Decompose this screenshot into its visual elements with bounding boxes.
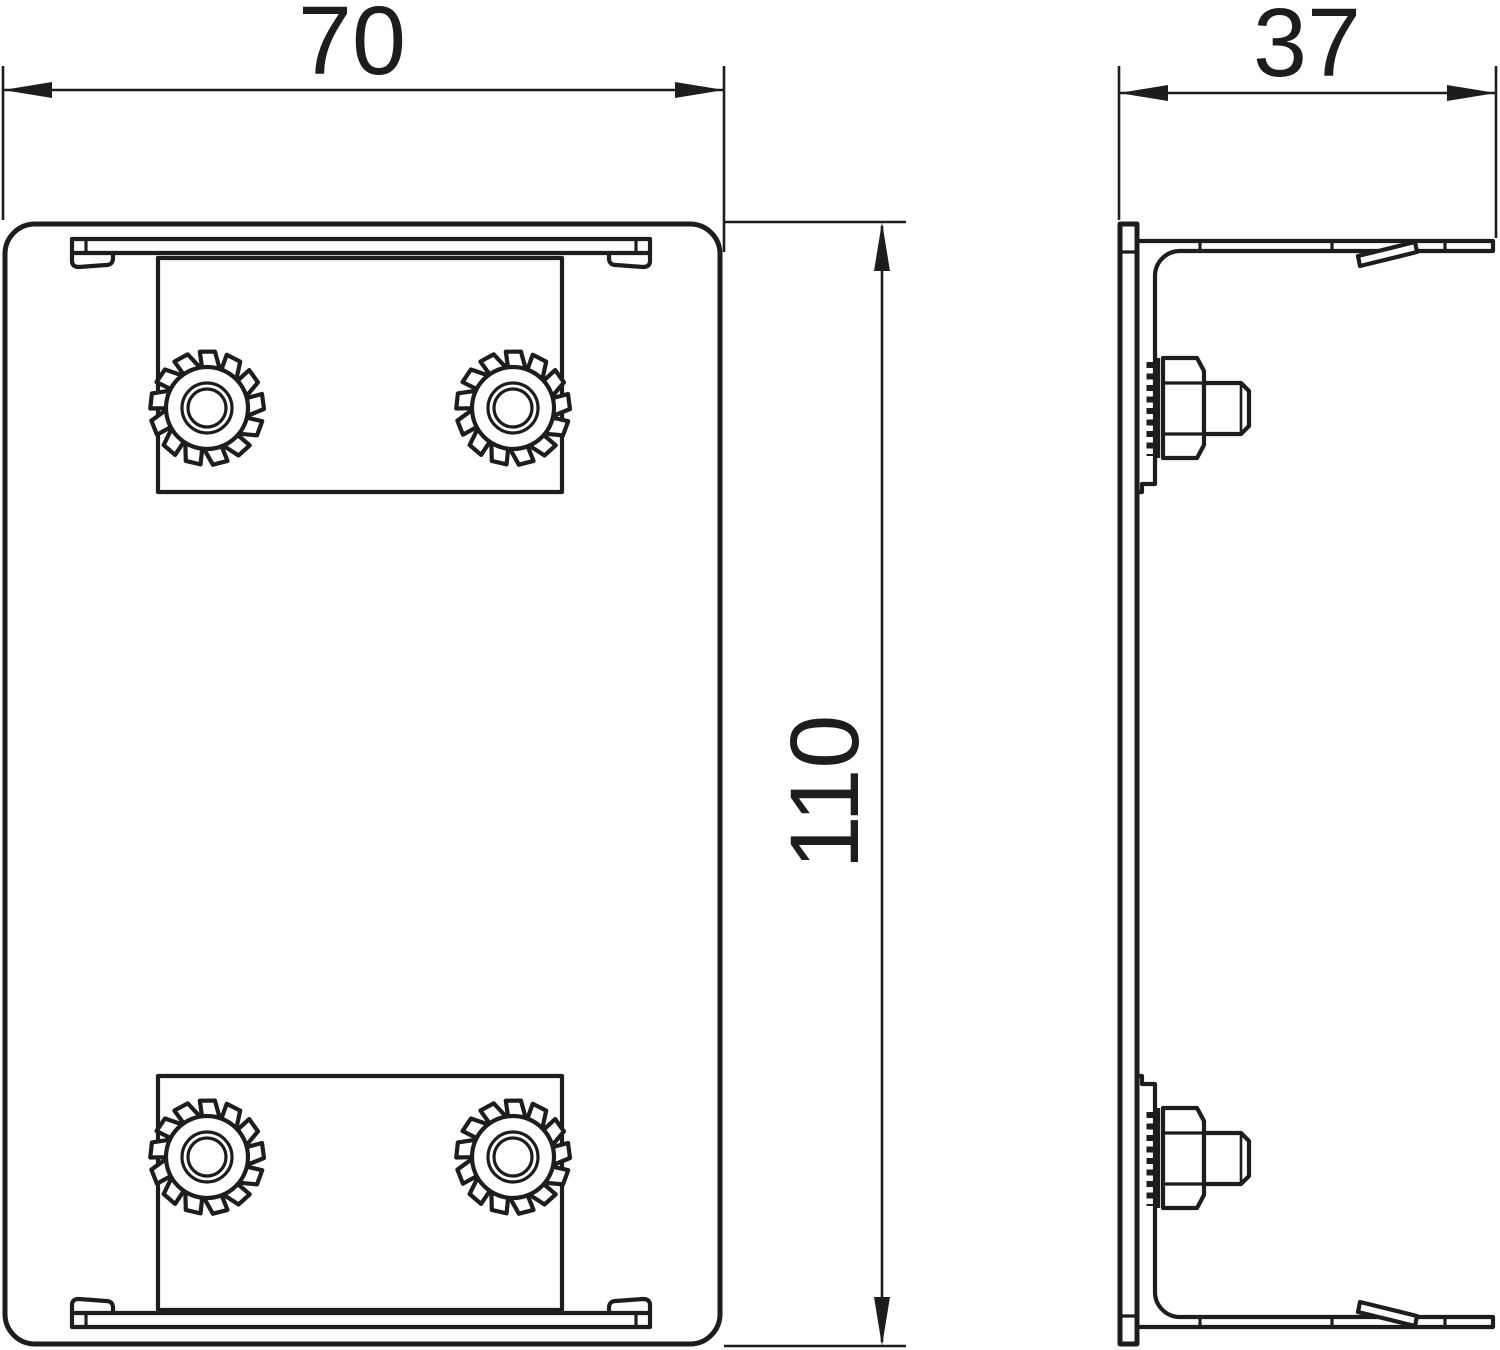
rail-foot-right-top bbox=[609, 253, 650, 267]
dimension-depth-value: 37 bbox=[1253, 0, 1361, 97]
dimension-height: 110 bbox=[724, 222, 906, 1346]
stud-assembly-top bbox=[1151, 358, 1249, 458]
end-cap-body-outline bbox=[5, 224, 720, 1344]
arrowhead-down bbox=[874, 1297, 890, 1346]
rail-foot-left-top bbox=[72, 253, 113, 267]
lock-washer bbox=[148, 350, 264, 467]
arrowhead-left bbox=[1119, 85, 1168, 101]
stud-assembly-bottom bbox=[1151, 1108, 1249, 1208]
arrowhead-right bbox=[1447, 85, 1496, 101]
lock-washer bbox=[148, 1099, 264, 1216]
rail-bar-top bbox=[72, 239, 650, 253]
mounting-plate-bottom bbox=[148, 1076, 570, 1310]
arrowhead-up bbox=[874, 222, 890, 271]
side-view: 37 bbox=[1119, 0, 1496, 1344]
lock-washer bbox=[454, 1099, 570, 1216]
hex-nut bbox=[1163, 1108, 1204, 1208]
mounting-plate-top bbox=[148, 258, 570, 492]
hex-nut bbox=[1163, 358, 1204, 458]
drawing-canvas: 70 110 bbox=[0, 0, 1500, 1350]
dimension-height-value: 110 bbox=[770, 715, 879, 870]
dimension-depth: 37 bbox=[1119, 0, 1496, 238]
snap-latch-top bbox=[1358, 242, 1417, 266]
cap-plate-edge bbox=[1120, 224, 1137, 1344]
rail-bar-bottom bbox=[72, 1313, 650, 1327]
technical-drawing: 70 110 bbox=[0, 0, 1500, 1350]
front-view: 70 110 bbox=[3, 0, 906, 1346]
dimension-width-value: 70 bbox=[298, 0, 406, 95]
lock-washer bbox=[454, 350, 570, 467]
dimension-width: 70 bbox=[3, 0, 724, 252]
arrowhead-left bbox=[3, 82, 52, 98]
arrowhead-right bbox=[675, 82, 724, 98]
snap-latch-bottom bbox=[1358, 1302, 1417, 1326]
